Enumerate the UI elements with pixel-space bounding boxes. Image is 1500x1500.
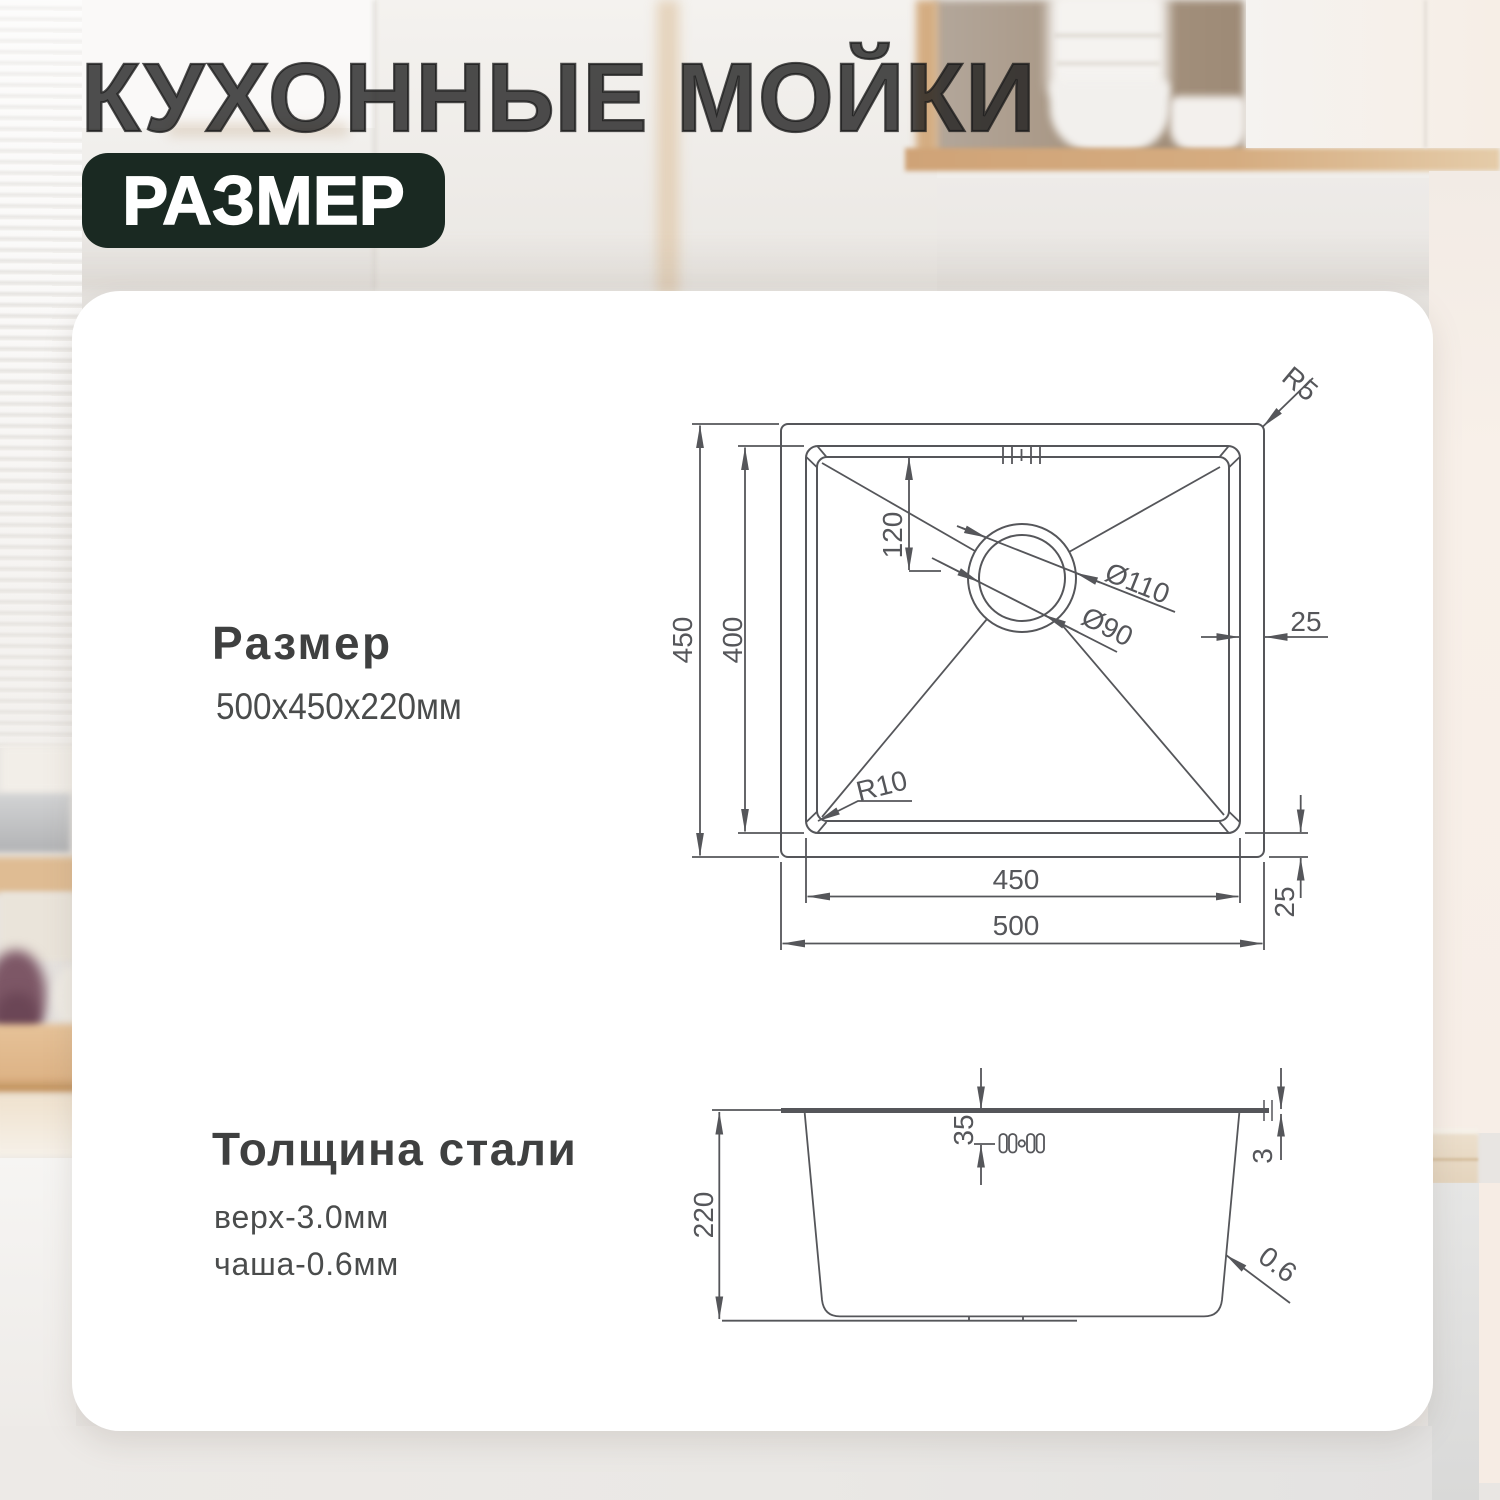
- svg-text:220: 220: [688, 1192, 719, 1239]
- svg-text:450: 450: [993, 864, 1040, 895]
- svg-text:25: 25: [1290, 606, 1321, 637]
- svg-text:Ø90: Ø90: [1077, 601, 1138, 653]
- svg-text:R5: R5: [1276, 360, 1323, 407]
- svg-text:450: 450: [667, 617, 698, 664]
- svg-text:25: 25: [1269, 886, 1300, 917]
- svg-text:400: 400: [717, 617, 748, 664]
- svg-text:Ø110: Ø110: [1101, 557, 1174, 610]
- svg-text:3: 3: [1247, 1148, 1278, 1164]
- svg-text:35: 35: [948, 1114, 979, 1145]
- svg-text:500: 500: [993, 910, 1040, 941]
- svg-text:120: 120: [877, 512, 908, 559]
